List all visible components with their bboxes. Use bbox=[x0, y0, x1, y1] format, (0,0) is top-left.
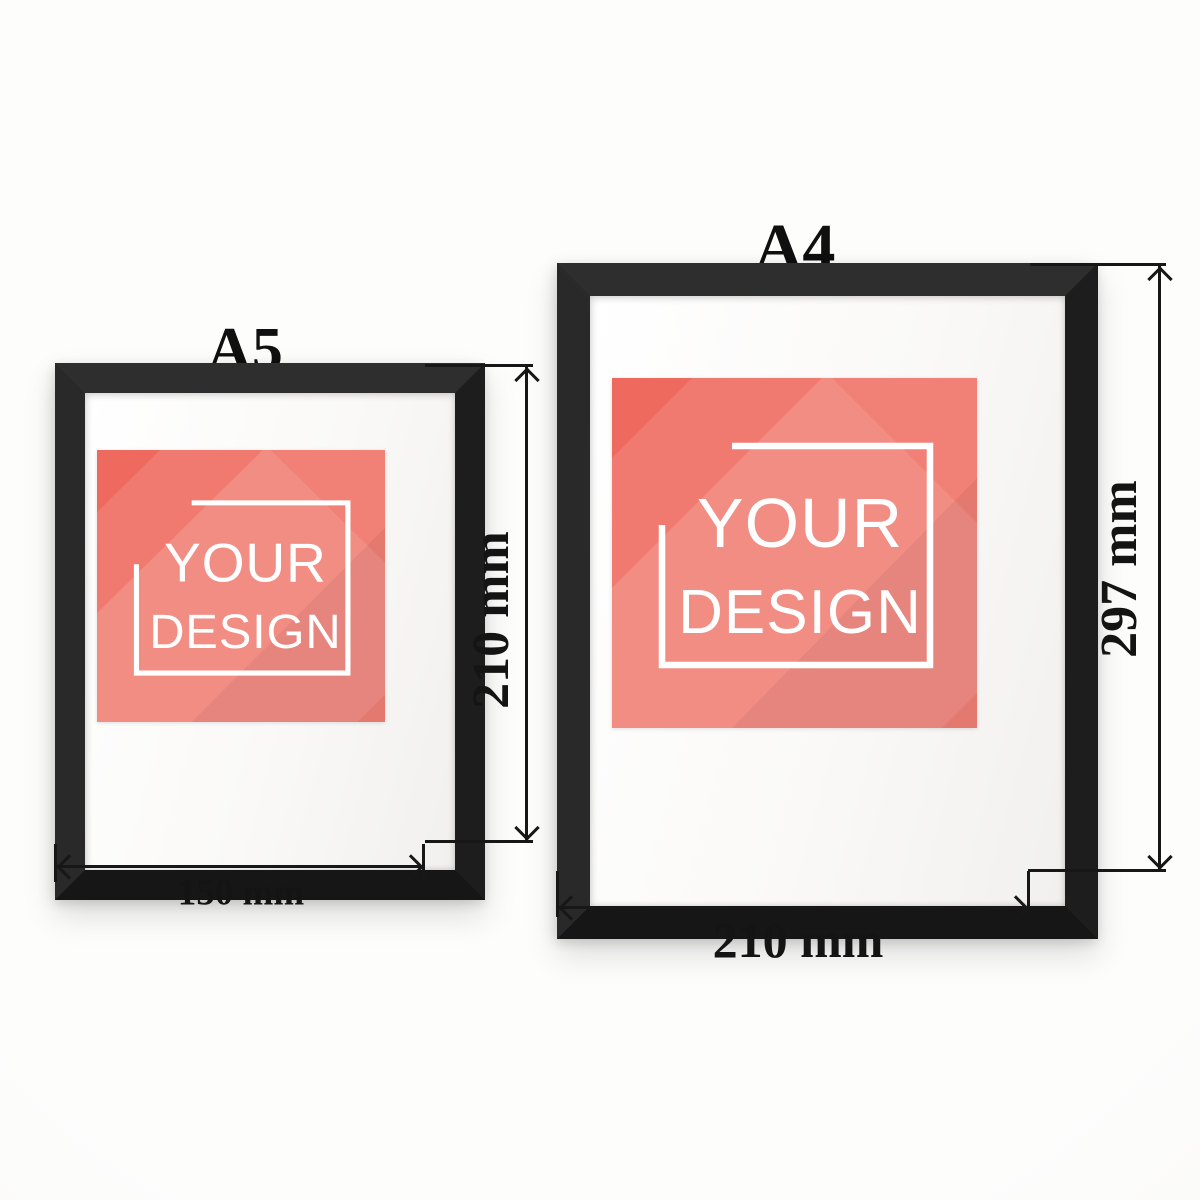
placeholder-line1: YOUR bbox=[164, 532, 327, 594]
placeholder-line2: DESIGN bbox=[149, 605, 341, 659]
a5-picture-frame: YOUR DESIGN bbox=[55, 363, 485, 900]
a5-height-extension-bottom bbox=[425, 840, 533, 843]
a4-height-label: 297 mm bbox=[1094, 480, 1146, 658]
a4-height-extension-top bbox=[1030, 263, 1166, 266]
a5-width-extension-left bbox=[54, 844, 57, 882]
placeholder-line1: YOUR bbox=[697, 484, 903, 562]
a5-height-label: 210 mm bbox=[466, 531, 518, 709]
a5-design-placeholder: YOUR DESIGN bbox=[97, 450, 385, 722]
a4-height-dimension-line bbox=[1158, 265, 1161, 871]
a4-height-extension-bottom bbox=[1028, 869, 1166, 872]
a4-width-extension-left bbox=[556, 871, 559, 917]
arrow-down-icon bbox=[514, 815, 539, 840]
frame-size-comparison-diagram: A5 YOUR DESIGN 210 mm bbox=[0, 0, 1200, 1200]
a4-mat: YOUR DESIGN bbox=[590, 296, 1065, 906]
arrow-up-icon bbox=[514, 367, 539, 392]
a5-width-label: 150 mm bbox=[178, 875, 304, 912]
a5-design-art: YOUR DESIGN bbox=[97, 450, 385, 722]
a5-mat: YOUR DESIGN bbox=[85, 393, 455, 870]
a5-width-extension-right bbox=[422, 844, 425, 882]
a4-design-art: YOUR DESIGN bbox=[612, 378, 977, 728]
a4-design-placeholder: YOUR DESIGN bbox=[612, 378, 977, 728]
a4-width-extension-right bbox=[1027, 871, 1030, 917]
placeholder-line2: DESIGN bbox=[678, 578, 922, 647]
a4-picture-frame: YOUR DESIGN bbox=[557, 263, 1098, 939]
a4-width-label: 210 mm bbox=[713, 915, 884, 965]
arrow-down-icon bbox=[1147, 844, 1172, 869]
a5-height-dimension-line bbox=[525, 366, 528, 841]
a4-width-dimension-line bbox=[557, 906, 1030, 909]
arrow-up-icon bbox=[1147, 266, 1172, 291]
a5-height-extension-top bbox=[425, 364, 533, 367]
a5-width-dimension-line bbox=[55, 865, 425, 868]
